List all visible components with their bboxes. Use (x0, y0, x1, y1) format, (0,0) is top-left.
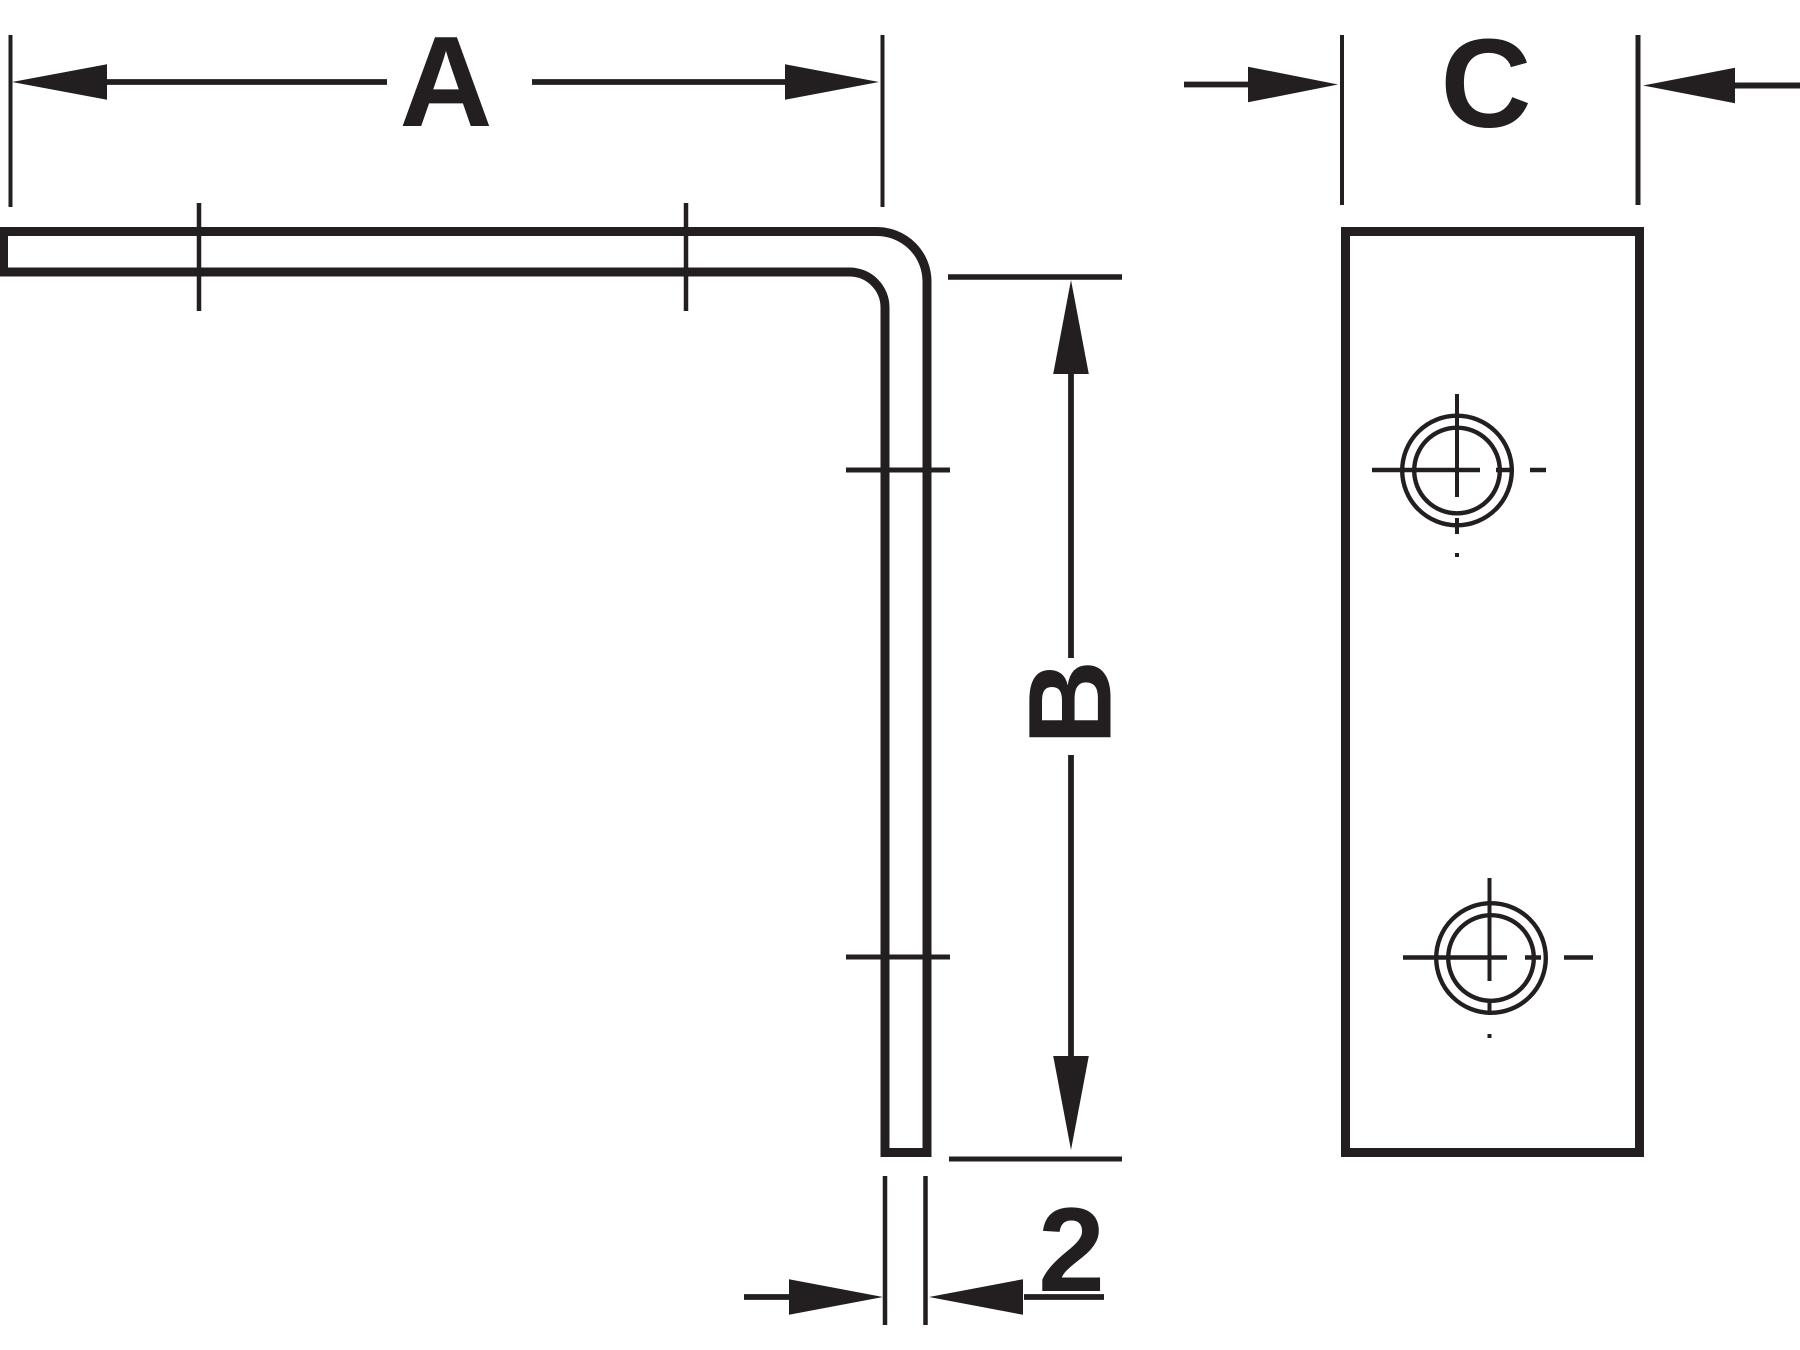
svg-text:A: A (399, 10, 492, 154)
svg-text:2: 2 (1038, 1183, 1105, 1317)
svg-text:B: B (1005, 660, 1137, 745)
svg-text:C: C (1441, 13, 1532, 154)
